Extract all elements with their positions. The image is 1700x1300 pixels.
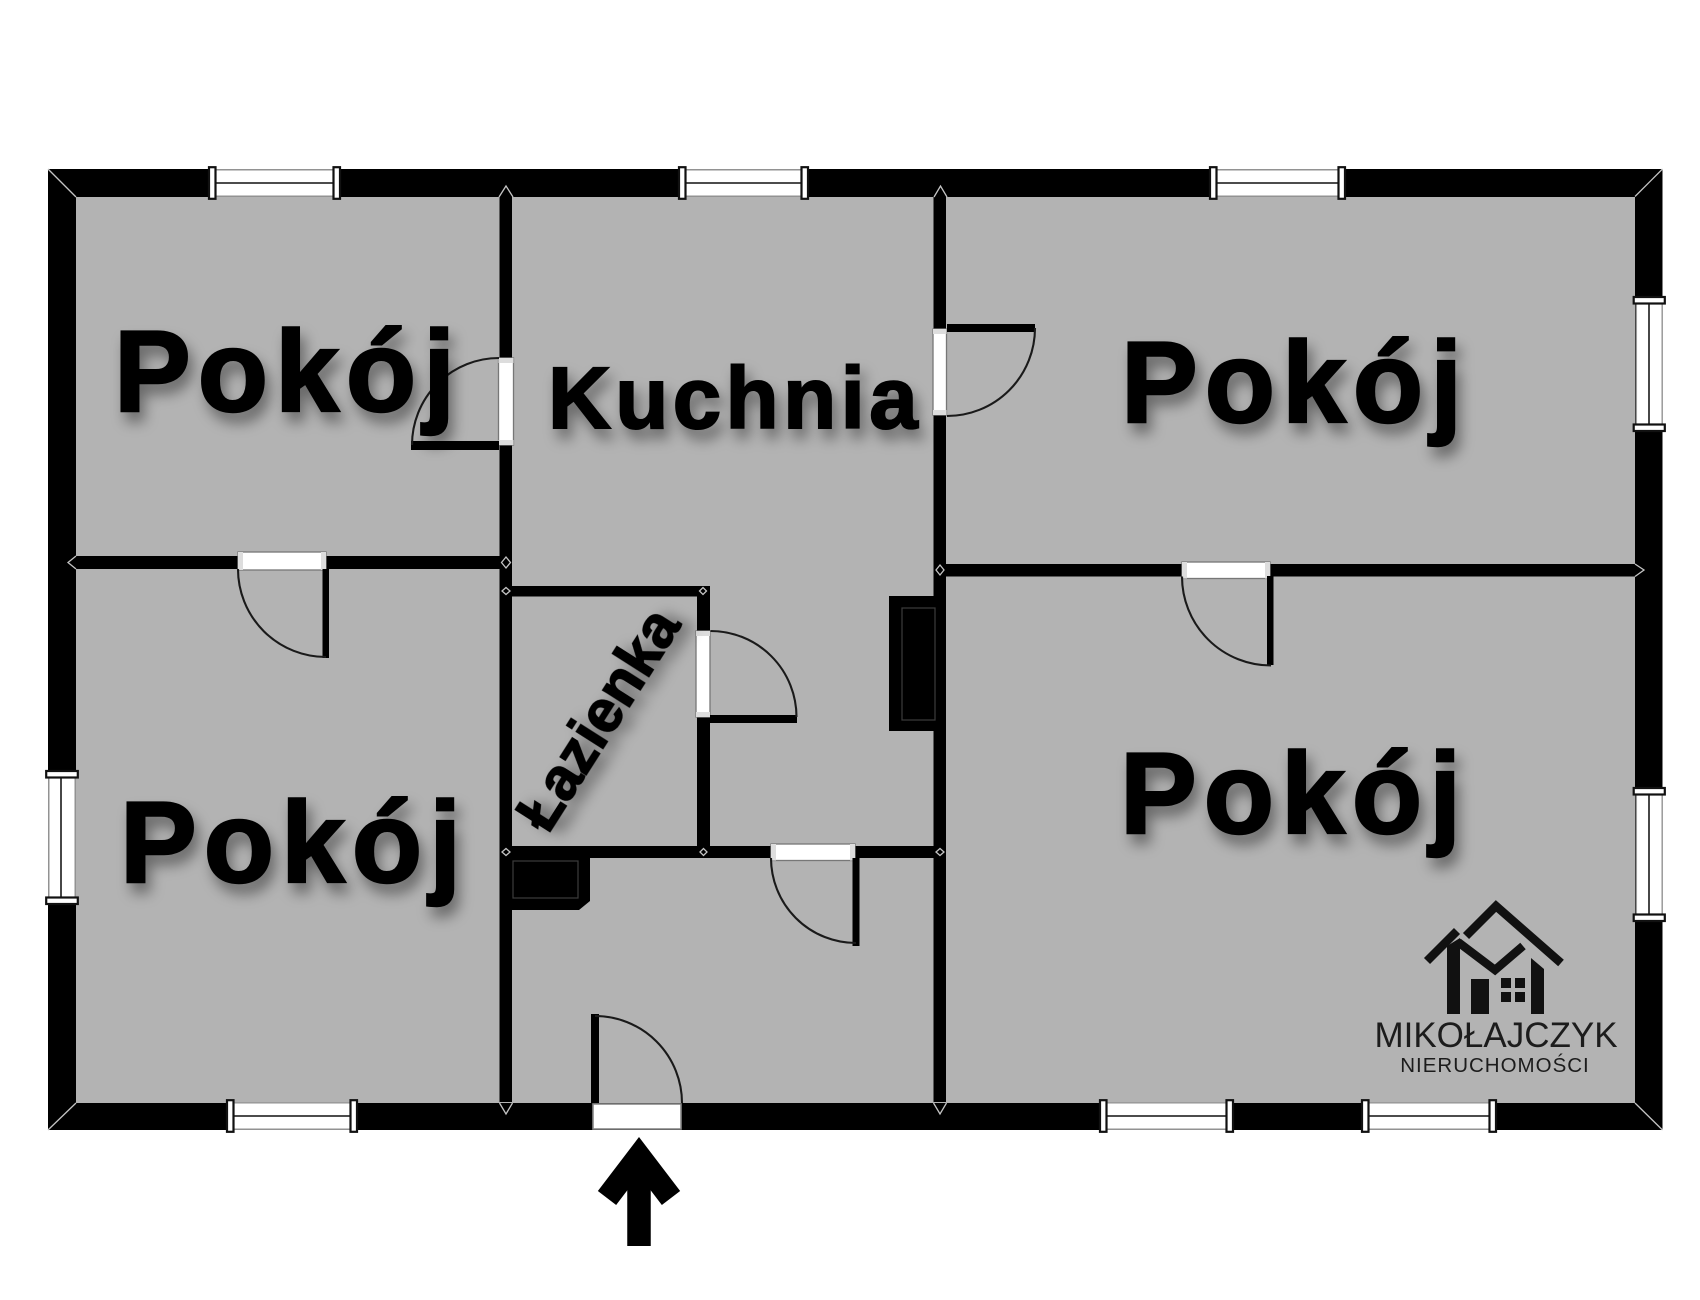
svg-text:MIKOŁAJCZYK: MIKOŁAJCZYK bbox=[1374, 1016, 1617, 1055]
svg-text:NIERUCHOMOŚCI: NIERUCHOMOŚCI bbox=[1400, 1053, 1590, 1077]
svg-text:Pokój: Pokój bbox=[114, 308, 462, 436]
svg-text:Pokój: Pokój bbox=[1120, 730, 1468, 858]
svg-text:Pokój: Pokój bbox=[120, 779, 468, 907]
svg-text:Pokój: Pokój bbox=[1121, 319, 1469, 447]
svg-text:Kuchnia: Kuchnia bbox=[548, 350, 922, 447]
